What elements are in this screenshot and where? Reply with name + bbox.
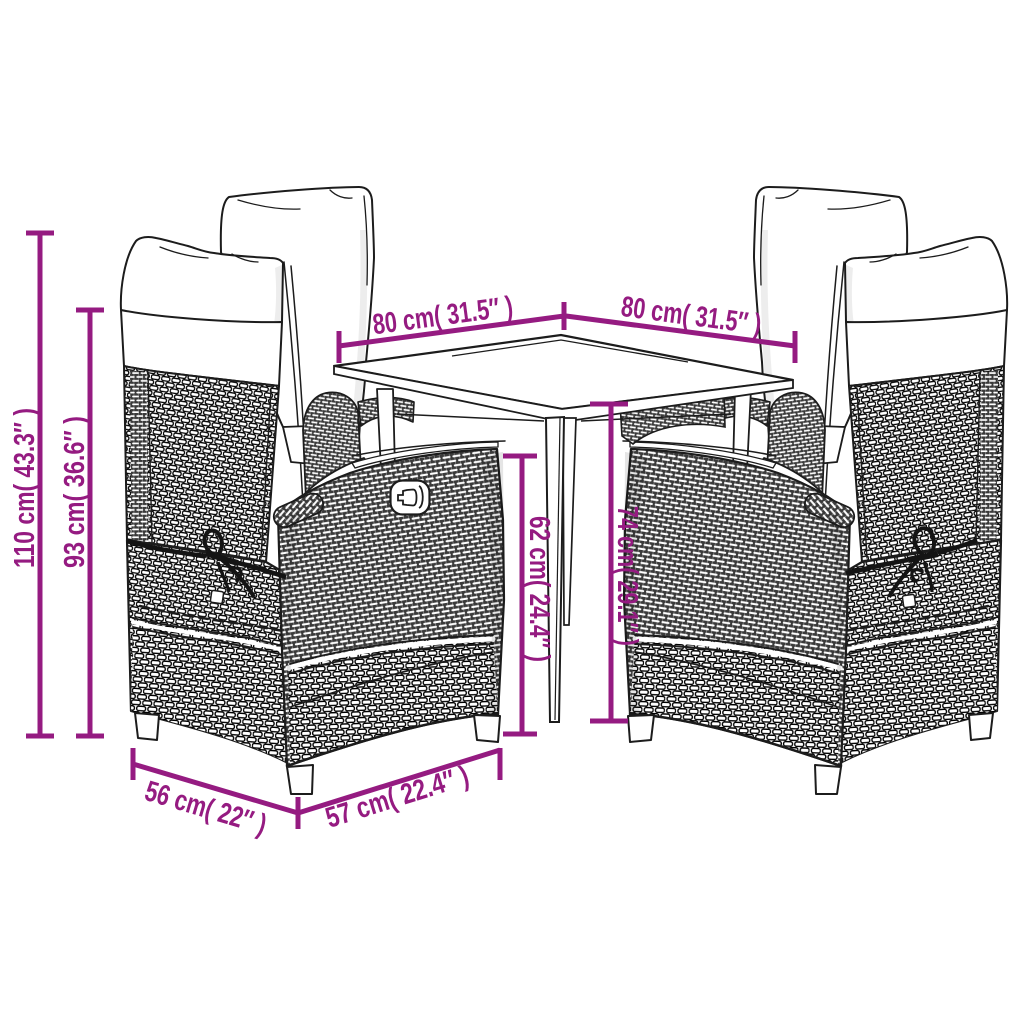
svg-text:62 cm( 24.4″ ): 62 cm( 24.4″ ) bbox=[523, 516, 555, 662]
svg-text:93 cm( 36.6″ ): 93 cm( 36.6″ ) bbox=[59, 416, 91, 568]
svg-text:74 cm( 29.1″ ): 74 cm( 29.1″ ) bbox=[611, 506, 643, 646]
svg-text:110 cm( 43.3″ ): 110 cm( 43.3″ ) bbox=[9, 408, 41, 568]
